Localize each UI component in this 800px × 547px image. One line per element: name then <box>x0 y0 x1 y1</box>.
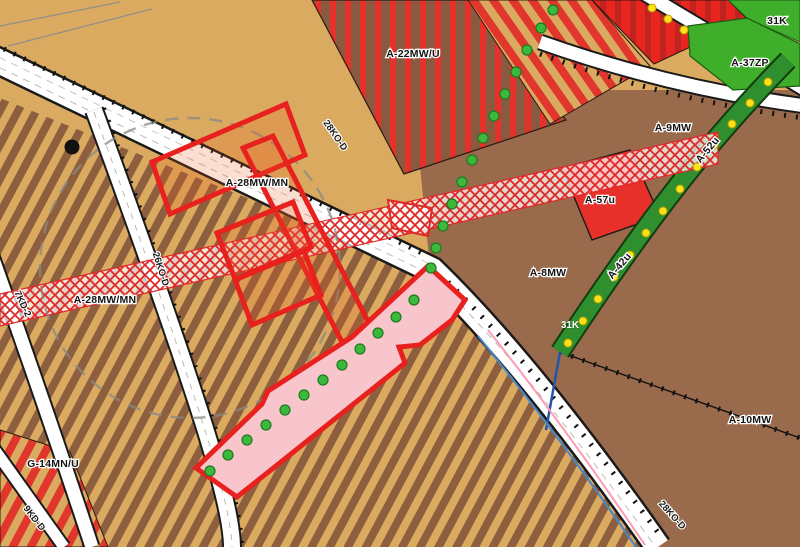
parcel-label-a22: A-22MW/U <box>386 48 440 60</box>
zoning-map[interactable]: A-22MW/U 31K A-37ZP A-9MW A-52u A-57u A-… <box>0 0 800 547</box>
parcel-label-a28-1: A-28MW/MN <box>226 177 288 189</box>
parcel-label-a57u: A-57u <box>585 194 615 206</box>
parcel-label-31k-strip: 31K <box>561 320 580 331</box>
parcel-label-a8mw: A-8MW <box>530 267 567 279</box>
parcel-label-a28-2: A-28MW/MN <box>74 294 136 306</box>
parcel-label-31k-ne: 31K <box>767 15 787 27</box>
map-canvas[interactable]: A-22MW/U 31K A-37ZP A-9MW A-52u A-57u A-… <box>0 0 800 547</box>
survey-point <box>65 140 80 155</box>
parcel-label-a10mw: A-10MW <box>729 414 772 426</box>
parcel-label-a37zp: A-37ZP <box>731 57 768 69</box>
parcel-label-g14: G-14MN/U <box>27 458 79 470</box>
parcel-label-a9mw: A-9MW <box>655 122 692 134</box>
